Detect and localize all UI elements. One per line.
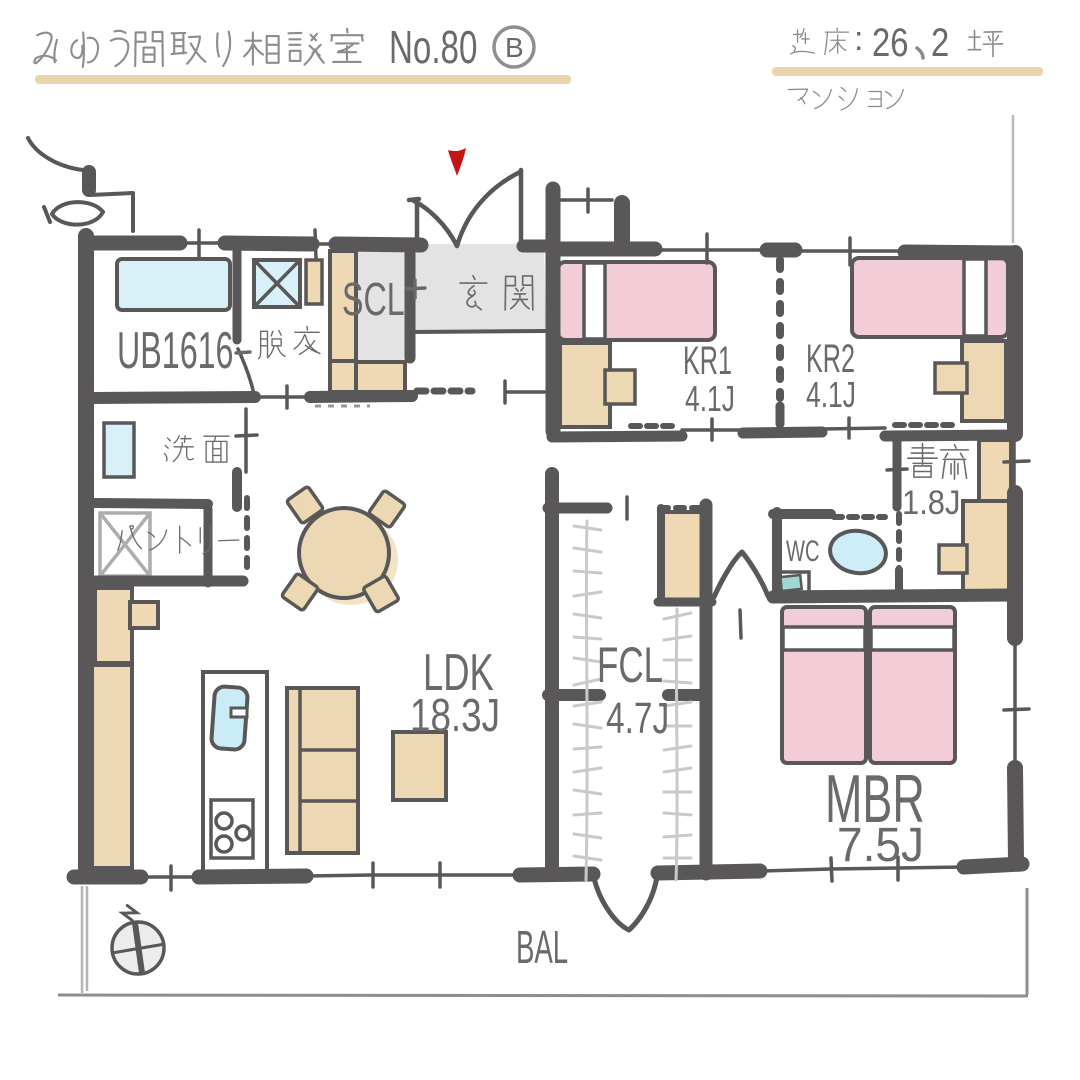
svg-text:18.3J: 18.3J — [410, 689, 500, 741]
svg-text:FCL: FCL — [597, 638, 663, 694]
svg-text:4.7J: 4.7J — [606, 695, 669, 743]
svg-text:26: 26 — [872, 20, 908, 65]
svg-text:WC: WC — [786, 535, 819, 568]
svg-text:B: B — [505, 32, 524, 63]
svg-text:BAL: BAL — [516, 923, 568, 974]
svg-text:SCL: SCL — [342, 274, 405, 325]
svg-text:UB1616: UB1616 — [117, 322, 233, 380]
svg-text::: : — [854, 20, 863, 58]
svg-text:4.1J: 4.1J — [806, 374, 856, 415]
svg-text:KR1: KR1 — [683, 339, 732, 383]
svg-text:1.8J: 1.8J — [902, 484, 960, 522]
svg-text:2: 2 — [931, 20, 949, 65]
svg-text:4.1J: 4.1J — [685, 378, 735, 419]
svg-text:7.5J: 7.5J — [837, 817, 924, 871]
svg-text:No.80: No.80 — [389, 23, 477, 73]
